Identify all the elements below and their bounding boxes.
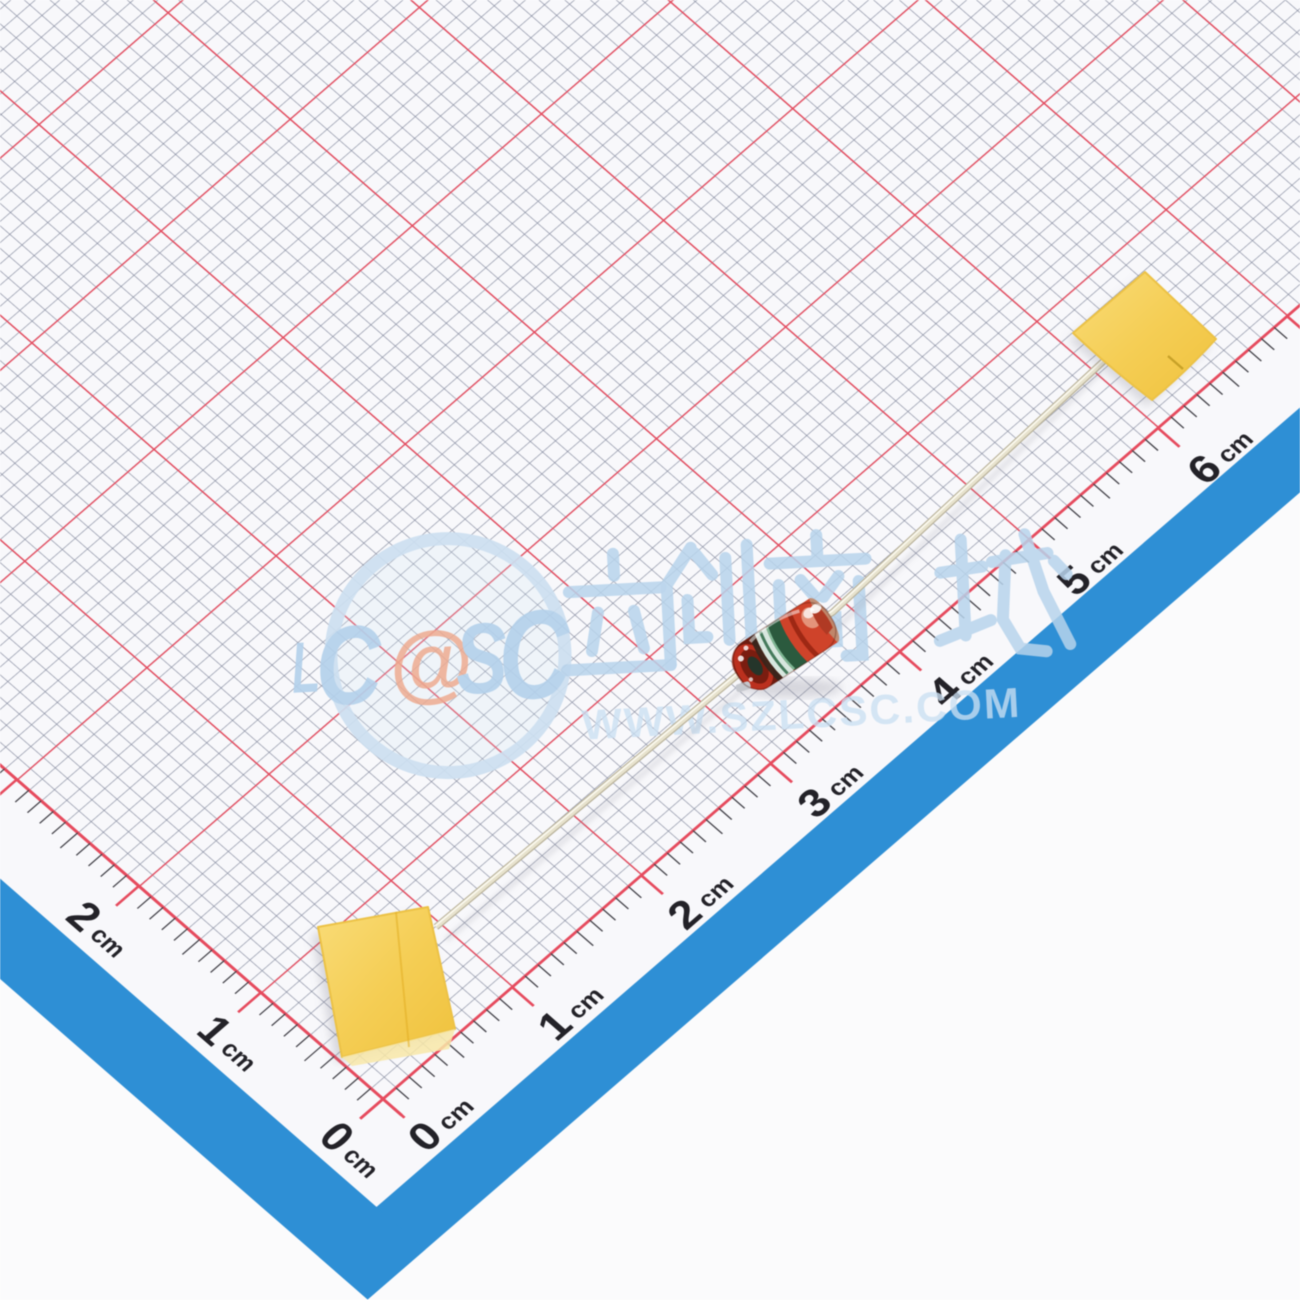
svg-text:C: C [494, 582, 575, 727]
svg-text:C: C [312, 601, 386, 729]
